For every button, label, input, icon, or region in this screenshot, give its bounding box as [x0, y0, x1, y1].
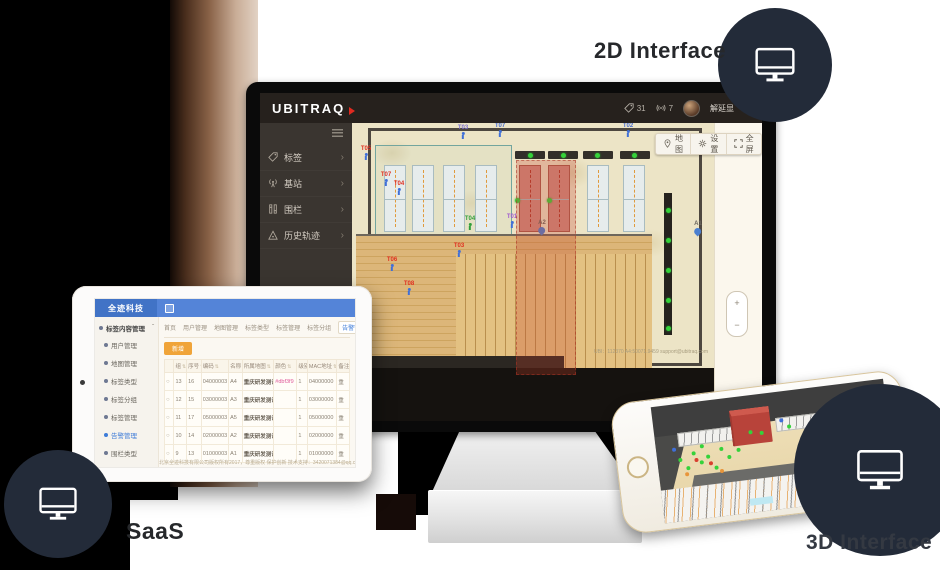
table-cell: 03000003 — [201, 391, 228, 409]
table-cell: A4 — [229, 373, 243, 391]
table-cell: 重 — [337, 427, 350, 445]
table-header-cell[interactable]: 组⇅ — [174, 360, 187, 373]
tab-bar: 首页用户管理地图管理标签类型标签管理标签分组告警管理 × — [164, 321, 350, 338]
row-select-cell[interactable]: ○ — [165, 391, 174, 409]
toolbar-button-label: 全屏 — [746, 133, 754, 155]
table-cell: A2 — [229, 427, 243, 445]
signal-count: 7 — [669, 104, 673, 113]
tag-label: T05 — [361, 146, 371, 152]
table-cell: 17 — [187, 409, 202, 427]
tag-label: T02 — [623, 123, 633, 129]
person-icon — [509, 221, 515, 228]
tablet-app-header: 全迹科技 — [95, 299, 355, 317]
bullet-icon — [104, 451, 108, 455]
fence-icon — [268, 204, 278, 216]
sort-icon[interactable]: ⇅ — [267, 364, 271, 370]
base-station-dot[interactable] — [666, 326, 671, 331]
sidebar-item-label: 标签 — [284, 151, 302, 164]
radio-icon[interactable]: ○ — [166, 379, 170, 385]
sidebar-item[interactable]: 基站› — [260, 171, 352, 197]
map-tag-marker[interactable]: T05 — [361, 146, 371, 160]
sort-icon[interactable]: ⇅ — [182, 364, 186, 370]
map-toolbar-button[interactable]: 地图 — [656, 134, 690, 154]
storage-rack — [587, 165, 609, 232]
map-tag-marker[interactable]: T07 — [495, 123, 505, 137]
base-station-dot[interactable] — [595, 153, 600, 158]
base-station-dot[interactable] — [666, 238, 671, 243]
storage-rack — [623, 165, 645, 232]
map-tag-marker[interactable]: T07 — [381, 172, 391, 186]
zoom-out-button[interactable]: − — [734, 320, 739, 330]
radio-icon[interactable]: ○ — [166, 415, 170, 421]
table-cell: 重庆研发测试 — [242, 391, 274, 409]
table-cell: 12 — [174, 391, 187, 409]
row-select-cell[interactable]: ○ — [165, 409, 174, 427]
table-cell: 03000000 — [307, 391, 336, 409]
person-body — [499, 133, 501, 137]
person-icon — [406, 288, 412, 295]
tablet-sidebar-label: 告警管理 — [111, 430, 137, 440]
base-station-dot[interactable] — [666, 298, 671, 303]
table-body: ○131604000003A4重庆研发测试#dbf3f9104000000重○1… — [165, 373, 350, 463]
map-tag-marker[interactable]: T08 — [404, 281, 414, 295]
station-icon — [268, 178, 278, 190]
tag-icon — [624, 103, 634, 113]
tab-item[interactable]: 标签分组 — [307, 323, 331, 332]
table-cell: 重庆研发测试 — [242, 373, 274, 391]
storage-rack — [412, 165, 434, 232]
fullscreen-icon — [734, 139, 743, 150]
table-cell — [274, 391, 297, 409]
table-header-cell[interactable]: 颜色⇅ — [274, 360, 297, 373]
bullet-icon — [104, 397, 108, 401]
chevron-right-icon: › — [341, 205, 344, 215]
logo-red-mark-icon — [349, 107, 355, 115]
tag-label: T06 — [387, 257, 397, 263]
sidebar-item-label: 基站 — [284, 177, 302, 190]
label-saas: SaaS — [126, 518, 184, 545]
row-select-cell[interactable]: ○ — [165, 427, 174, 445]
table-head: 组⇅序号⇅编码⇅名称⇅所属地图⇅颜色⇅级别⇅MAC地址⇅备注 — [165, 360, 350, 373]
sidebar-group-label: 标签内容管理 — [106, 323, 145, 333]
tag-count: 31 — [637, 104, 646, 113]
map-tag-marker[interactable]: T02 — [623, 123, 633, 137]
person-icon — [396, 188, 402, 195]
map-tag-marker[interactable]: T03 — [458, 125, 468, 139]
sort-icon[interactable]: ⇅ — [215, 364, 219, 370]
map-tag-marker[interactable]: T06 — [387, 257, 397, 271]
table-cell: 05000003 — [201, 409, 228, 427]
hamburger-icon[interactable] — [332, 129, 343, 137]
tablet-logo: 全迹科技 — [95, 299, 157, 317]
table-cell: 16 — [187, 373, 202, 391]
map-right-strip — [714, 123, 762, 421]
person-body — [458, 253, 460, 257]
person-body — [627, 133, 629, 137]
bullet-icon — [104, 379, 108, 383]
table-cell: 04000003 — [201, 373, 228, 391]
history-icon — [268, 230, 278, 242]
right-wall — [664, 193, 672, 335]
table-cell: 14 — [187, 427, 202, 445]
shadow-blotch — [376, 494, 416, 530]
table-cell: 04000000 — [307, 373, 336, 391]
gear-icon — [698, 139, 707, 150]
tablet-sidebar-item[interactable]: 标签分组 — [95, 390, 158, 408]
tablet-sidebar-label: 地图管理 — [111, 358, 137, 368]
table-cell: 重庆研发测试 — [242, 427, 274, 445]
sort-icon[interactable]: ⇅ — [333, 364, 337, 370]
radio-icon[interactable]: ○ — [166, 397, 170, 403]
monitor-badge-saas — [4, 450, 112, 558]
monitor-icon — [753, 45, 797, 85]
hero-composite: UBITRAQ 31 7 解延显 ▼ — [0, 0, 940, 570]
table-header-row: 组⇅序号⇅编码⇅名称⇅所属地图⇅颜色⇅级别⇅MAC地址⇅备注 — [165, 360, 350, 373]
map-tag-marker[interactable]: T03 — [454, 243, 464, 257]
tab-item[interactable]: 告警管理 × — [338, 321, 355, 334]
map-toolbar-button[interactable]: 全屏 — [726, 134, 761, 154]
person-icon — [625, 130, 631, 137]
tab-item[interactable]: 地图管理 — [214, 323, 238, 332]
table-row[interactable]: ○101402000003A2重庆研发测试102000000重 — [165, 427, 350, 445]
tag-icon — [268, 152, 278, 164]
person-body — [391, 267, 393, 271]
tablet-main: 首页用户管理地图管理标签类型标签管理标签分组告警管理 × 新增 组⇅序号⇅编码⇅… — [159, 317, 355, 467]
username[interactable]: 解延显 — [710, 103, 734, 114]
bullet-icon — [99, 326, 103, 330]
table-cell: 重庆研发测试 — [242, 409, 274, 427]
tablet-sidebar-item[interactable]: 告警管理 — [95, 426, 158, 444]
label-2d-interface: 2D Interface — [594, 38, 726, 64]
radio-icon[interactable]: ○ — [166, 433, 170, 439]
signal-count-group[interactable]: 7 — [656, 103, 673, 113]
tablet-device: 全迹科技 标签内容管理 ˆ 用户管理地图管理标签类型标签分组标签管理告警管理围栏… — [72, 286, 372, 482]
monitor-badge-2d — [718, 8, 832, 122]
table-header-cell[interactable]: 名称⇅ — [229, 360, 243, 373]
person-icon — [383, 179, 389, 186]
table-cell: 05000000 — [307, 409, 336, 427]
signal-icon — [656, 103, 666, 113]
table-header-cell[interactable]: 所属地图⇅ — [242, 360, 274, 373]
monitor-icon — [854, 447, 906, 493]
tablet-sidebar-item[interactable]: 围栏类型 — [95, 444, 158, 462]
zoom-control: + − — [726, 291, 748, 337]
tracking-dot — [685, 472, 689, 476]
table-header-cell[interactable]: 编码⇅ — [201, 360, 228, 373]
pin-icon — [663, 139, 672, 150]
tracking-dot — [678, 458, 682, 462]
table-cell: 02000003 — [201, 427, 228, 445]
table-cell: #dbf3f9 — [274, 373, 297, 391]
tablet-sidebar-label: 标签分组 — [111, 394, 137, 404]
table-cell: 10 — [174, 427, 187, 445]
base-station-dot[interactable] — [561, 153, 566, 158]
table-header-cell[interactable]: 级别⇅ — [297, 360, 308, 373]
table-cell: 02000000 — [307, 427, 336, 445]
tablet-camera-icon — [80, 380, 85, 385]
tablet-sidebar-label: 围栏管理 — [111, 466, 137, 468]
person-body — [385, 182, 387, 186]
table-cell — [274, 409, 297, 427]
data-table: 组⇅序号⇅编码⇅名称⇅所属地图⇅颜色⇅级别⇅MAC地址⇅备注○131604000… — [164, 359, 350, 463]
table-cell: 重 — [337, 409, 350, 427]
tracking-dot — [714, 465, 718, 469]
sidebar-group-header[interactable]: 标签内容管理 ˆ — [95, 320, 158, 336]
map-toolbar: 地图设置全屏 — [655, 133, 762, 155]
chevron-right-icon: › — [341, 179, 344, 189]
tablet-sidebar-item[interactable]: 围栏管理 — [95, 462, 158, 468]
tablet-sidebar-item[interactable]: 标签类型 — [95, 372, 158, 390]
tablet-app-body: 标签内容管理 ˆ 用户管理地图管理标签类型标签分组标签管理告警管理围栏类型围栏管… — [95, 317, 355, 467]
table-row[interactable]: ○121503000003A3重庆研发测试103000000重 — [165, 391, 350, 409]
person-body — [511, 224, 513, 228]
sidebar-item[interactable]: 围栏› — [260, 197, 352, 223]
map-toolbar-button[interactable]: 设置 — [690, 134, 725, 154]
person-icon — [460, 132, 466, 139]
table-header-cell[interactable]: 备注 — [337, 360, 350, 373]
table-cell: 1 — [297, 391, 308, 409]
toolbar-button-label: 设置 — [710, 133, 718, 155]
tag-label: T08 — [404, 281, 414, 287]
collapse-caret-icon[interactable]: ˆ — [152, 325, 154, 331]
sidebar-item-label: 历史轨迹 — [284, 229, 320, 242]
base-station-dot[interactable] — [666, 208, 671, 213]
person-icon — [389, 264, 395, 271]
monitor-icon — [37, 485, 79, 523]
table-header-cell[interactable] — [165, 360, 174, 373]
person-body — [408, 291, 410, 295]
person-icon — [467, 223, 473, 230]
table-header-cell[interactable]: MAC地址⇅ — [307, 360, 336, 373]
map-panel[interactable]: T05T03T07T02T07T04T04T01T06T08T03A2A1 地图… — [352, 123, 762, 421]
person-body — [365, 156, 367, 160]
table-cell: A3 — [229, 391, 243, 409]
tag-count-group[interactable]: 31 — [624, 103, 646, 113]
person-body — [462, 135, 464, 139]
tablet-header-bar — [157, 299, 355, 317]
person-icon — [456, 250, 462, 257]
person-body — [398, 191, 400, 195]
app-header: UBITRAQ 31 7 解延显 ▼ — [260, 93, 762, 123]
monitor-stand-base — [428, 490, 642, 543]
table-cell: 15 — [187, 391, 202, 409]
home-button[interactable] — [626, 455, 651, 480]
user-avatar[interactable] — [683, 100, 700, 117]
anchor-pin-icon — [693, 227, 703, 237]
table-header-cell[interactable]: 序号⇅ — [187, 360, 202, 373]
tab-item[interactable]: 用户管理 — [183, 323, 207, 332]
chevron-right-icon: › — [341, 231, 344, 241]
map-watermark: UBI：112370 A4:50071.9459 support@ubitraq… — [462, 348, 708, 355]
table-row[interactable]: ○111705000003A5重庆研发测试105000000重 — [165, 409, 350, 427]
bullet-icon — [104, 415, 108, 419]
radio-icon[interactable]: ○ — [166, 451, 170, 457]
base-station-dot[interactable] — [632, 153, 637, 158]
map-tag-marker[interactable]: T04 — [394, 181, 404, 195]
add-button[interactable]: 新增 — [164, 342, 192, 355]
tag-label: T04 — [465, 216, 475, 222]
base-station-dot[interactable] — [666, 268, 671, 273]
tablet-sidebar-item[interactable]: 地图管理 — [95, 354, 158, 372]
table-cell: 重 — [337, 391, 350, 409]
chevron-right-icon: › — [341, 153, 344, 163]
table-cell: 1 — [297, 409, 308, 427]
anchor-label: A1 — [694, 221, 702, 227]
tab-item[interactable]: 标签类型 — [245, 323, 269, 332]
tablet-sidebar-label: 围栏类型 — [111, 448, 137, 458]
ubitraq-logo: UBITRAQ — [272, 101, 345, 116]
tablet-sidebar-label: 标签类型 — [111, 376, 137, 386]
table-row[interactable]: ○131604000003A4重庆研发测试#dbf3f9104000000重 — [165, 373, 350, 391]
table-cell: 13 — [174, 373, 187, 391]
tablet-screen: 全迹科技 标签内容管理 ˆ 用户管理地图管理标签类型标签分组标签管理告警管理围栏… — [94, 298, 356, 468]
person-icon — [497, 130, 503, 137]
tag-label: T03 — [458, 125, 468, 131]
toolbar-button-label: 地图 — [675, 133, 683, 155]
table-cell: 11 — [174, 409, 187, 427]
copyright-footer: 北京全迹科技有限公司版权所有2017，尊重版权 保护创新 技术支持：342007… — [159, 459, 351, 466]
table-cell: 1 — [297, 373, 308, 391]
bullet-icon — [104, 343, 108, 347]
person-icon — [363, 153, 369, 160]
tag-label: T07 — [381, 172, 391, 178]
map-tag-marker[interactable]: T04 — [465, 216, 475, 230]
row-select-cell[interactable]: ○ — [165, 373, 174, 391]
sort-icon[interactable]: ⇅ — [287, 364, 291, 370]
tablet-sidebar-label: 标签管理 — [111, 412, 137, 422]
storage-rack — [443, 165, 465, 232]
table-cell: 重 — [337, 373, 350, 391]
tablet-sidebar-item[interactable]: 用户管理 — [95, 336, 158, 354]
bullet-icon — [104, 433, 108, 437]
tab-item[interactable]: 首页 — [164, 323, 176, 332]
map-anchor-marker[interactable]: A1 — [694, 221, 702, 235]
sidebar-item[interactable]: 历史轨迹› — [260, 223, 352, 249]
table-cell: A5 — [229, 409, 243, 427]
bullet-icon — [104, 361, 108, 365]
base-station-dot[interactable] — [528, 153, 533, 158]
tablet-sidebar: 标签内容管理 ˆ 用户管理地图管理标签类型标签分组标签管理告警管理围栏类型围栏管… — [95, 317, 159, 467]
tag-label: T04 — [394, 181, 404, 187]
sidebar-item[interactable]: 标签› — [260, 145, 352, 171]
label-3d-interface: 3D Interface — [806, 531, 932, 555]
tablet-sidebar-item[interactable]: 标签管理 — [95, 408, 158, 426]
menu-toggle-icon[interactable] — [165, 304, 174, 313]
tag-label: T07 — [495, 123, 505, 129]
sidebar-item-label: 围栏 — [284, 203, 302, 216]
tablet-sidebar-label: 用户管理 — [111, 340, 137, 350]
person-body — [469, 226, 471, 230]
zoom-in-button[interactable]: + — [734, 298, 739, 308]
tab-item[interactable]: 标签管理 — [276, 323, 300, 332]
table-cell: 1 — [297, 427, 308, 445]
tracking-dot — [700, 460, 704, 464]
table-cell — [274, 427, 297, 445]
tag-label: T03 — [454, 243, 464, 249]
storage-rack — [475, 165, 497, 232]
3d-red-structure — [729, 406, 773, 447]
fence-zone[interactable] — [516, 160, 576, 375]
